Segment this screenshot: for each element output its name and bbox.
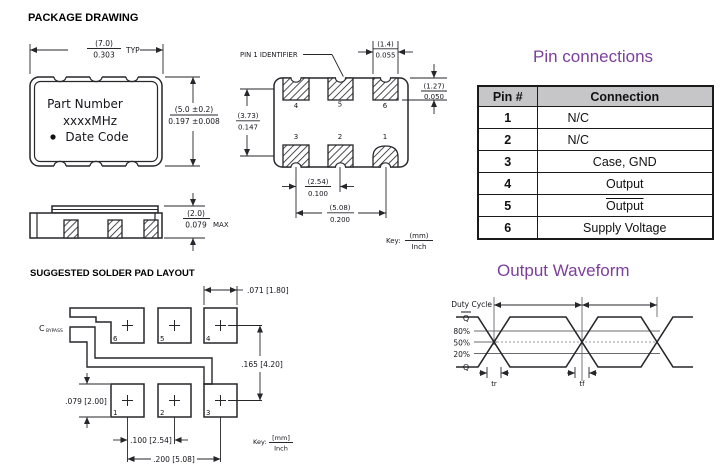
pad-number: 2: [338, 133, 342, 141]
key-label: Key:: [253, 438, 267, 446]
table-row: 4 Output: [478, 173, 713, 195]
pad-center-crosses: [122, 320, 226, 406]
tr-label: tr: [491, 380, 497, 388]
dim-pitch: .100 [2.54]: [130, 436, 172, 445]
output-waveform-title: Output Waveform: [497, 261, 630, 281]
solder-pad-layout-drawing: 6 5 4 1 2 3 C BYPASS .071 [1.80] .165 [4…: [30, 284, 320, 474]
dim-solder-pad-height: .079 [2.00]: [65, 373, 110, 428]
dim-pad-w-mm: (1.4): [377, 41, 394, 49]
duty-cycle-label: Duty Cycle: [451, 300, 492, 309]
table-row: 2 N/C: [478, 129, 713, 151]
cbypass-main: C: [39, 324, 45, 333]
pin-connections-table: Pin # Connection 1 N/C 2 N/C 3 Case, GND…: [477, 85, 714, 240]
pin1-identifier-label: PIN 1 IDENTIFIER: [240, 51, 298, 59]
dim-row-spacing: .165 [4.20]: [241, 360, 283, 369]
connection-cell: Case, GND: [537, 151, 713, 173]
dim-package-thickness: (2.0) 0.079 MAX: [164, 193, 229, 251]
pin-cell: 5: [478, 195, 537, 217]
part-number-label: Part Number: [47, 97, 123, 111]
package-side-view: [30, 206, 162, 238]
date-code-label: Date Code: [65, 130, 128, 144]
connection-cell: N/C: [537, 107, 713, 129]
dim-solder-pitch-span: .100 [2.54] .200 [5.08]: [113, 417, 221, 464]
pin-cell: 3: [478, 151, 537, 173]
connection-cell: Supply Voltage: [537, 217, 713, 240]
dim-pad-w: .071 [1.80]: [247, 286, 289, 295]
table-row: 1 N/C: [478, 107, 713, 129]
output-waveform-drawing: Duty Cycle Q 80% 50% 20% Q tr tf: [440, 288, 721, 390]
solder-pad-layout-title: SUGGESTED SOLDER PAD LAYOUT: [30, 268, 195, 279]
cbypass-label: C BYPASS: [39, 324, 63, 334]
key-numerator: (mm): [409, 232, 428, 240]
level-20-label: 20%: [453, 350, 470, 359]
package-drawing-title: PACKAGE DRAWING: [28, 12, 138, 24]
pad-number: 6: [383, 102, 388, 110]
date-code-bullet: [50, 134, 55, 139]
dim-height-mm: (5.0 ±0.2): [175, 105, 213, 114]
dim-pad-h: .079 [2.00]: [65, 397, 107, 406]
table-row: 5 Output: [478, 195, 713, 217]
connection-cell: N/C: [537, 129, 713, 151]
dim-thickness-mm: (2.0): [187, 209, 205, 218]
dim-width-typ: TYP: [125, 46, 140, 55]
connection-header: Connection: [537, 86, 713, 107]
pin-cell: 6: [478, 217, 537, 240]
pin-connections-title: Pin connections: [533, 47, 653, 67]
dim-height-in: 0.197 ±0.008: [168, 117, 220, 126]
pad-view-drawing: PIN 1 IDENTIFIER: [235, 40, 450, 252]
frequency-label: xxxxMHz: [63, 114, 117, 128]
pad-number: 5: [338, 101, 342, 109]
table-row: 6 Supply Voltage: [478, 217, 713, 240]
level-80-label: 80%: [453, 327, 470, 336]
dim-width-mm: (7.0): [95, 39, 113, 48]
datasheet-page: PACKAGE DRAWING SUGGESTED SOLDER PAD LAY…: [0, 0, 721, 476]
table-row: 3 Case, GND: [478, 151, 713, 173]
dim-package-height: (5.0 ±0.2) 0.197 ±0.008: [165, 77, 220, 166]
dim-width-in: 0.303: [93, 51, 115, 60]
dim-thickness-max: MAX: [213, 221, 229, 229]
dim-span-in: 0.200: [330, 216, 350, 224]
dim-thickness-in: 0.079: [185, 221, 207, 230]
dim-solder-pad-width: .071 [1.80]: [204, 286, 289, 305]
dim-row-spacing: (3.73) 0.147: [236, 89, 274, 156]
package-front-drawing: (7.0) 0.303 TYP Part Number xxxxMHz: [20, 30, 235, 258]
cbypass-sub: BYPASS: [46, 328, 63, 334]
dim-pad-h-mm: (1.27): [423, 83, 444, 91]
dim-span-mm: (5.08): [329, 204, 350, 212]
level-50-label: 50%: [453, 339, 470, 348]
connection-cell: Output: [537, 173, 713, 195]
pad-number: 1: [383, 133, 387, 141]
pin-cell: 2: [478, 129, 537, 151]
units-key-brackets: Key: [mm] Inch: [253, 434, 293, 453]
dim-solder-row-spacing: .165 [4.20]: [228, 326, 283, 401]
pin-header: Pin #: [478, 86, 537, 107]
key-denominator: Inch: [274, 445, 288, 453]
pad-number: 4: [206, 335, 211, 343]
pad-number: 4: [294, 102, 299, 110]
q-label: Q: [463, 363, 469, 372]
key-numerator: [mm]: [272, 434, 290, 442]
dim-pad-width: (1.4) 0.055: [358, 41, 413, 75]
pad-number: 6: [113, 335, 118, 343]
key-label: Key:: [386, 237, 401, 245]
pad-number: 5: [160, 335, 164, 343]
dim-pitch-in: 0.100: [308, 190, 328, 198]
units-key-mm: Key: (mm) Inch: [386, 232, 433, 251]
waveform-reference-lines: [474, 297, 660, 381]
pad-number: 3: [206, 409, 210, 417]
dim-package-width: (7.0) 0.303 TYP: [30, 39, 163, 74]
pad-number: 3: [294, 133, 298, 141]
rise-time-dimension: tr: [479, 367, 509, 388]
key-denominator: Inch: [412, 243, 427, 251]
dim-row-in: 0.147: [238, 124, 258, 132]
connection-cell: Output: [537, 195, 713, 217]
dim-span: .200 [5.08]: [153, 455, 195, 464]
q-bar-label: Q: [463, 314, 469, 323]
pin-cell: 1: [478, 107, 537, 129]
dim-pitch-mm: (2.54): [307, 178, 328, 186]
pad-number: 1: [113, 409, 117, 417]
dim-pad-w-in: 0.055: [375, 52, 395, 60]
dim-pad-h-in: 0.050: [424, 93, 444, 101]
pad-number: 2: [160, 409, 164, 417]
pin-cell: 4: [478, 173, 537, 195]
table-header-row: Pin # Connection: [478, 86, 713, 107]
waveform-labels: Duty Cycle Q 80% 50% 20% Q: [451, 300, 492, 372]
dim-row-mm: (3.73): [237, 112, 258, 120]
tf-label: tf: [579, 380, 585, 388]
complementary-output-label: Output: [606, 199, 644, 213]
package-top-outline: [274, 77, 408, 169]
